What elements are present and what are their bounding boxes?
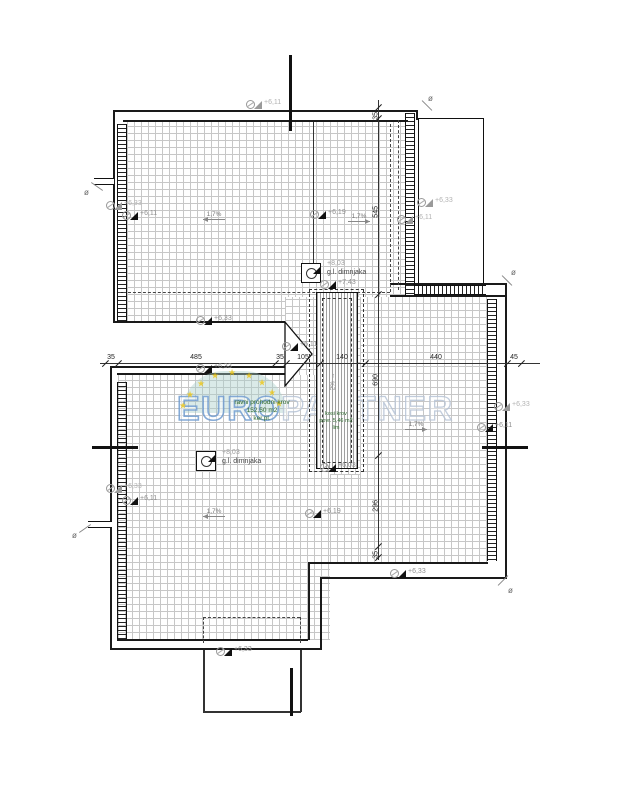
elevation-value: +6,11 bbox=[415, 214, 432, 221]
elevation-value: +6,11 bbox=[140, 210, 157, 217]
h-dimension-value: 35 bbox=[276, 354, 284, 361]
elevation-value: +6,33 bbox=[435, 197, 453, 204]
slope-value: 1,7% bbox=[348, 213, 370, 220]
strip-slope-label: 2% → bbox=[329, 373, 336, 391]
chimney-label: +8,03g.l. dimnjaka bbox=[222, 448, 261, 466]
drain-symbol: ø bbox=[84, 188, 89, 197]
chimney-name: g.l. dimnjaka bbox=[222, 457, 261, 466]
sloped-roof-finish: lim bbox=[314, 425, 358, 432]
slope-arrow-line-icon bbox=[348, 221, 370, 222]
flat-roof-label: ravni prohodni krov 152,50 m2 ker.pl. bbox=[217, 399, 307, 423]
gutter-stub-upper bbox=[94, 178, 114, 185]
marker-circle-icon bbox=[320, 463, 329, 472]
marker-circle-icon bbox=[477, 423, 486, 432]
elevation-value: +6,33 bbox=[124, 483, 142, 490]
h-dimension-value: 35 bbox=[107, 354, 115, 361]
elevation-value: +6,33 bbox=[512, 401, 530, 408]
elevation-value: +6,11 bbox=[264, 99, 281, 106]
h-dimension-value: 440 bbox=[430, 354, 442, 361]
section-mark-bottom bbox=[290, 668, 293, 716]
marker-circle-icon bbox=[216, 647, 225, 656]
drain-symbol: ø bbox=[508, 586, 513, 595]
elevation-value: +6,19 bbox=[323, 508, 341, 515]
v-dimension-value: 690 bbox=[373, 374, 380, 386]
eu-star-icon: ★ bbox=[186, 390, 194, 401]
elevation-value: +6,33 bbox=[124, 200, 142, 207]
marker-circle-icon bbox=[494, 402, 503, 411]
marker-circle-icon bbox=[106, 484, 115, 493]
eu-star-icon: ★ bbox=[197, 379, 205, 390]
marker-circle-icon bbox=[397, 215, 406, 224]
marker-circle-icon bbox=[390, 569, 399, 578]
v-dimension-value: 545 bbox=[373, 206, 380, 218]
elevation-value: +6,11 bbox=[140, 495, 157, 502]
marker-circle-icon bbox=[122, 211, 131, 220]
slope-arrow: 1,7% bbox=[203, 508, 225, 517]
section-mark-left bbox=[92, 446, 138, 449]
marker-circle-icon bbox=[106, 201, 115, 210]
roof-plan-drawing: ★★★★★★★★★ EUROPARTNER +8,03g.l. di bbox=[0, 0, 620, 798]
marker-circle-icon bbox=[196, 364, 205, 373]
slope-arrow: 1,7% bbox=[405, 421, 427, 430]
marker-circle-icon bbox=[122, 496, 131, 505]
slope-value: 1,7% bbox=[203, 211, 225, 218]
drain-symbol: ø bbox=[72, 531, 77, 540]
eu-star-icon: ★ bbox=[258, 378, 266, 389]
v-dimension-value: 35 bbox=[373, 112, 380, 120]
chimney-elevation-value: +8,03 bbox=[327, 259, 366, 268]
elevation-value: +7,43 bbox=[338, 279, 356, 286]
slope-arrow-line-icon bbox=[203, 516, 225, 517]
marker-circle-icon bbox=[305, 509, 314, 518]
eu-star-icon: ★ bbox=[268, 388, 276, 399]
marker-circle-icon bbox=[196, 316, 205, 325]
chimney-label: +8,03g.l. dimnjaka bbox=[327, 259, 366, 277]
elevation-value: +6,19 bbox=[328, 209, 346, 216]
slope-value: 1,7% bbox=[203, 508, 225, 515]
marker-circle-icon bbox=[417, 198, 426, 207]
elevation-value: +6,11 bbox=[495, 422, 512, 429]
marker-circle-icon bbox=[320, 280, 329, 289]
chimney-elevation-value: +8,03 bbox=[222, 448, 261, 457]
marker-circle-icon bbox=[246, 100, 255, 109]
h-dimension-value: 485 bbox=[190, 354, 202, 361]
elevation-value: +6,33 bbox=[234, 646, 252, 653]
gutter-stub-lower bbox=[88, 521, 112, 528]
section-mark-right bbox=[482, 446, 528, 449]
strip-dashed-inner bbox=[322, 298, 352, 463]
elevation-value: +6,03 bbox=[338, 462, 356, 469]
flat-roof-area: 152,50 m2 bbox=[217, 407, 307, 415]
elevation-value: +6,11 bbox=[300, 341, 317, 348]
chimney-name: g.l. dimnjaka bbox=[327, 268, 366, 277]
section-mark-top bbox=[289, 55, 292, 131]
flat-roof-name: ravni prohodni krov bbox=[217, 399, 307, 407]
sloped-roof-area: povr. 5,46 m2 bbox=[314, 418, 358, 425]
slope-arrow-line-icon bbox=[203, 219, 225, 220]
elevation-value: +6,33 bbox=[408, 568, 426, 575]
slope-value: 1,7% bbox=[405, 421, 427, 428]
elevation-value: +6,33 bbox=[214, 315, 232, 322]
marker-circle-icon bbox=[310, 210, 319, 219]
elevation-value: +6,33 bbox=[214, 363, 232, 370]
slope-arrow-line-icon bbox=[405, 429, 427, 430]
watermark-partner: PARTNER bbox=[281, 390, 453, 428]
h-dimension-value: 140 bbox=[336, 354, 348, 361]
eu-star-icon: ★ bbox=[211, 371, 219, 382]
slope-arrow: 1,7% bbox=[203, 211, 225, 220]
slope-arrow: 1,7% bbox=[348, 213, 370, 222]
h-dimension-value: 45 bbox=[510, 354, 518, 361]
eu-star-icon: ★ bbox=[245, 371, 253, 382]
sloped-roof-label: kosi krov povr. 5,46 m2 lim bbox=[314, 411, 358, 432]
drain-symbol: ø bbox=[428, 94, 433, 103]
drain-symbol: ø bbox=[511, 268, 516, 277]
eu-star-icon: ★ bbox=[179, 401, 187, 412]
marker-circle-icon bbox=[282, 342, 291, 351]
h-dimension-value: 105 bbox=[297, 354, 309, 361]
v-dimension-value: 35 bbox=[373, 551, 380, 559]
v-dimension-line bbox=[378, 100, 379, 560]
sloped-roof-name: kosi krov bbox=[314, 411, 358, 418]
flat-roof-finish: ker.pl. bbox=[217, 415, 307, 423]
v-dimension-value: 296 bbox=[373, 500, 380, 512]
